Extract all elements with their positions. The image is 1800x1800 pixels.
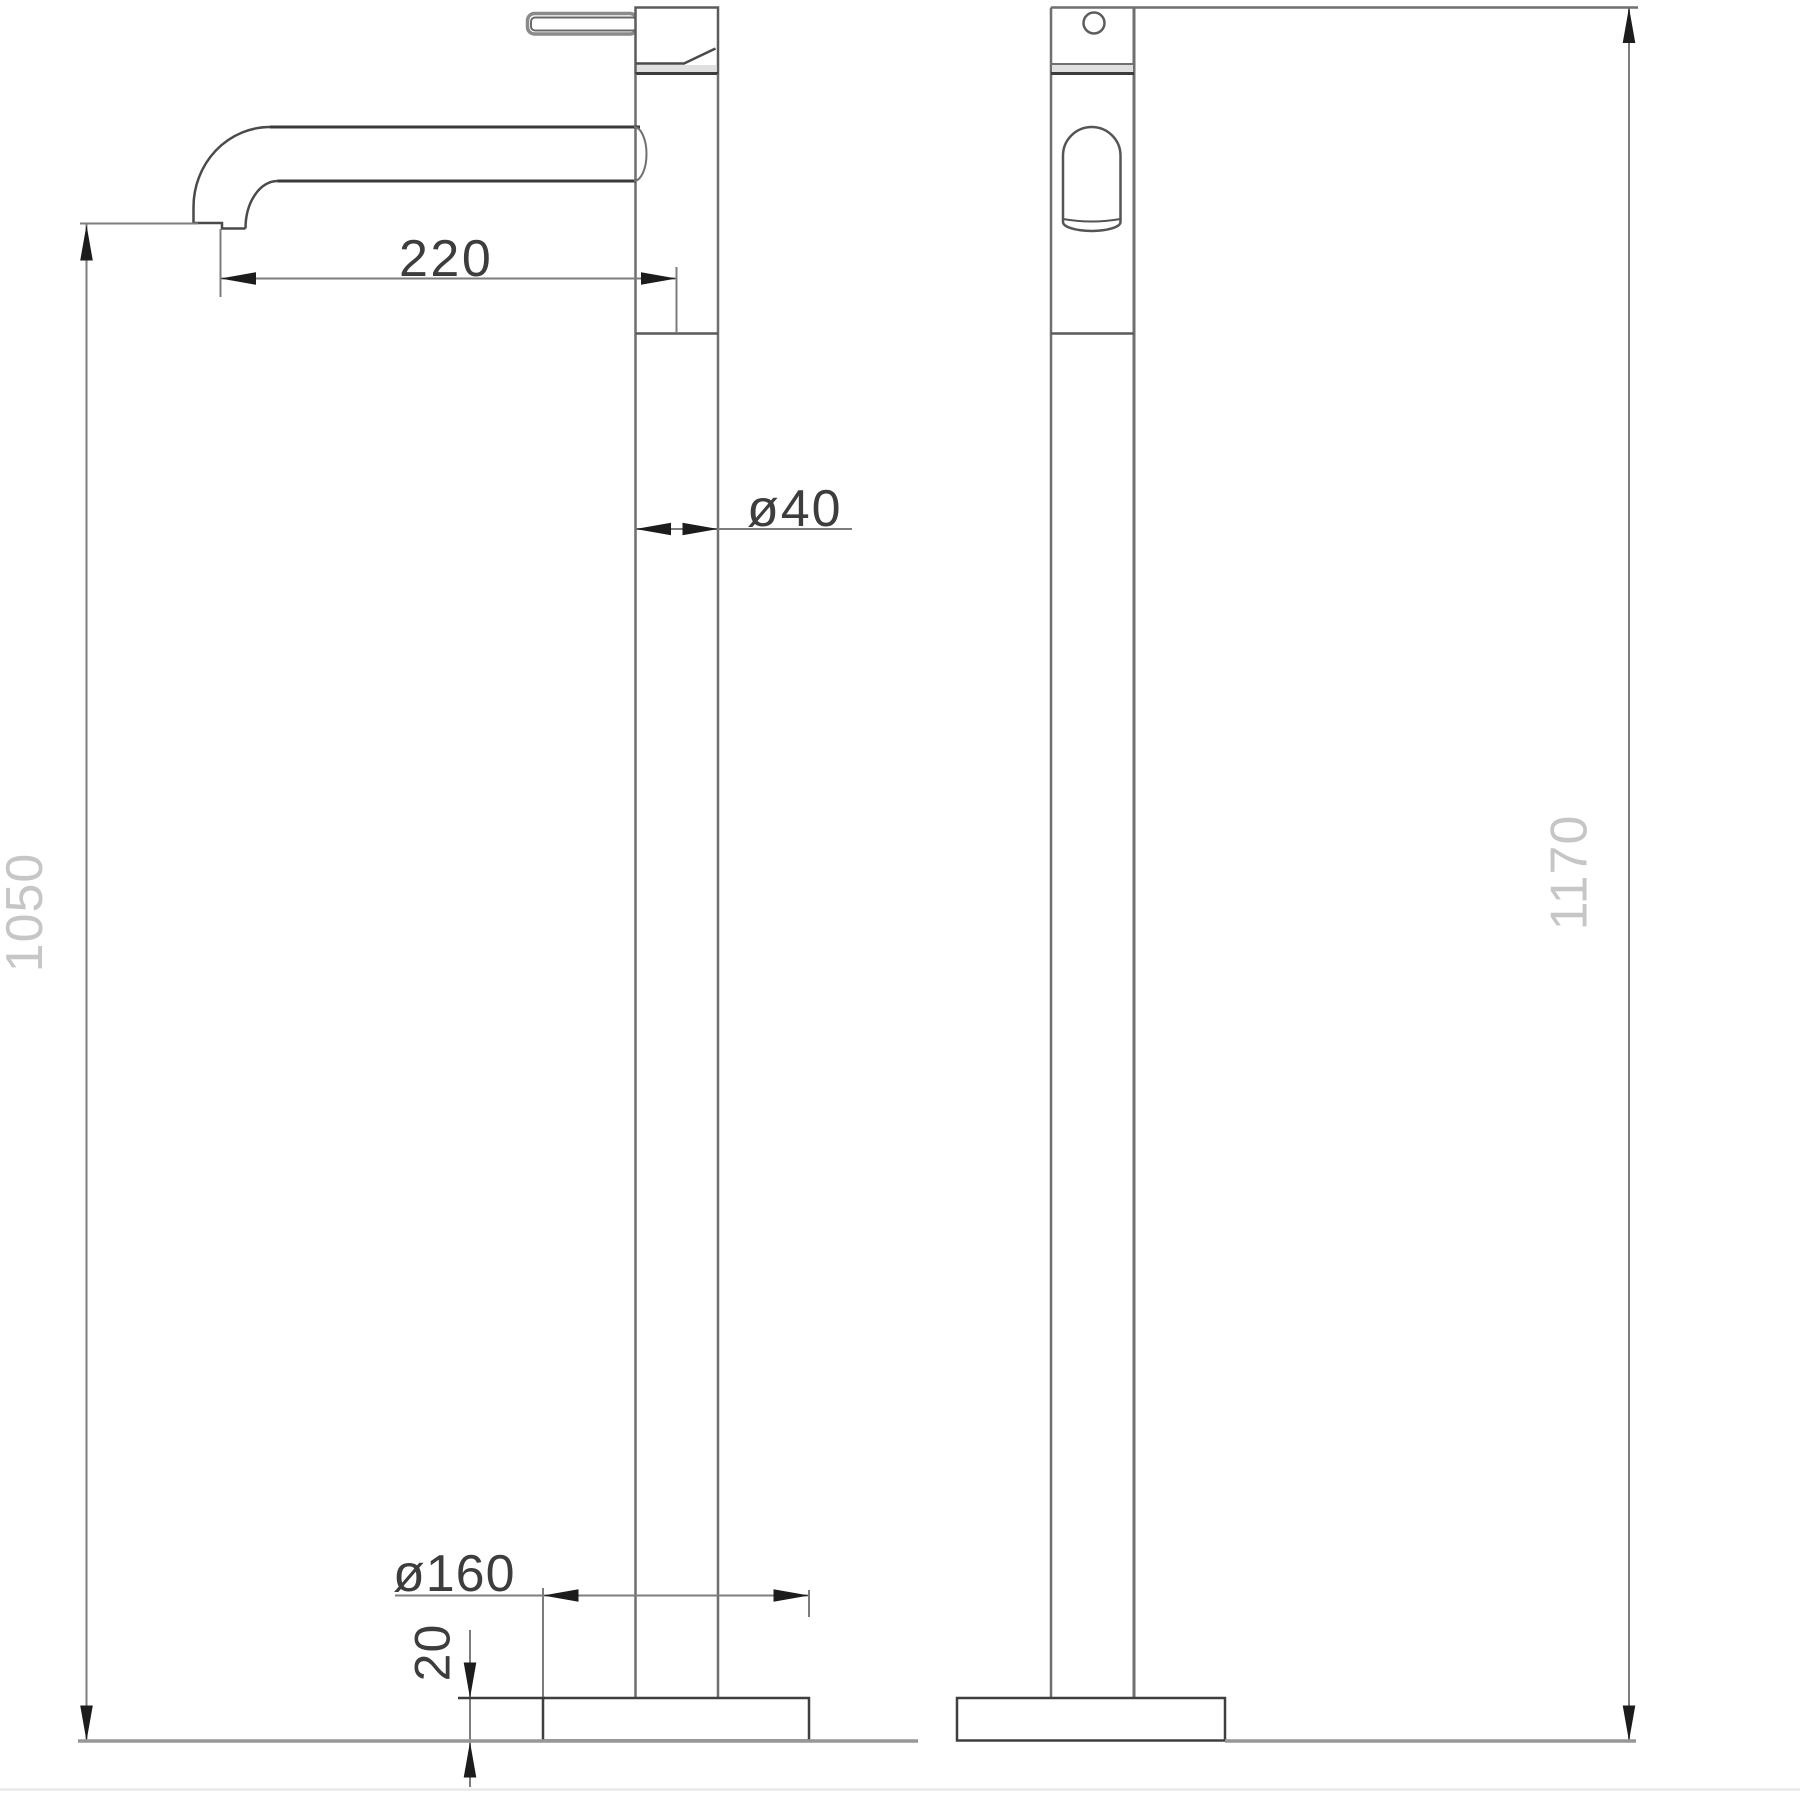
svg-text:1050: 1050 [0,853,54,973]
svg-text:20: 20 [405,1624,461,1682]
svg-text:1170: 1170 [1541,815,1599,931]
svg-text:ø160: ø160 [393,1545,516,1603]
